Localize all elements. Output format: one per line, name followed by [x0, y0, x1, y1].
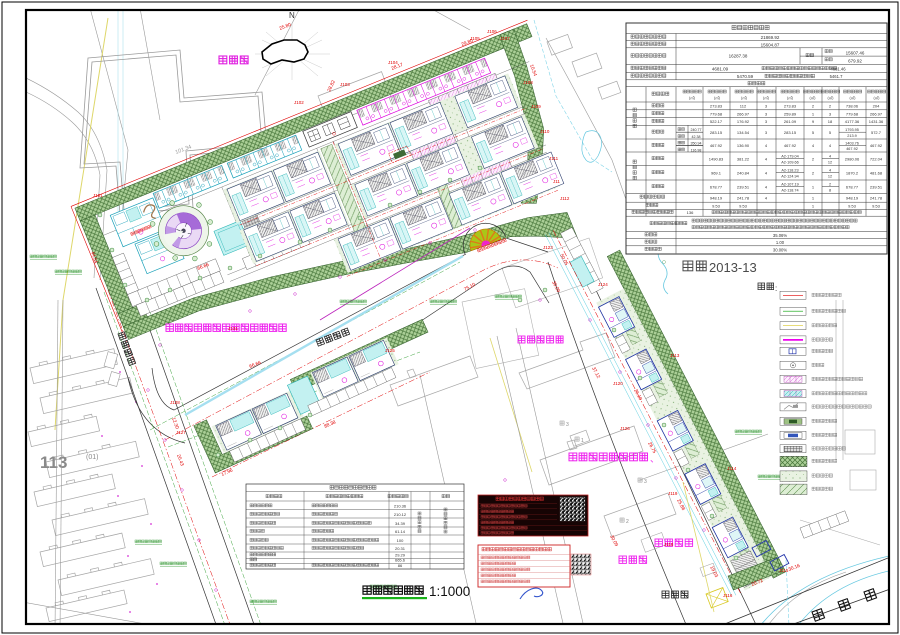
- svg-text:J119: J119: [668, 491, 678, 496]
- svg-text:241.78: 241.78: [870, 195, 883, 200]
- svg-text:12: 12: [828, 160, 832, 164]
- svg-text:J102: J102: [294, 100, 304, 105]
- svg-text:A2-107.19: A2-107.19: [781, 183, 799, 187]
- svg-text:665.6: 665.6: [395, 558, 406, 563]
- svg-text:113: 113: [40, 453, 67, 472]
- svg-text:61.14: 61.14: [395, 529, 406, 534]
- svg-text:241.78: 241.78: [737, 195, 750, 200]
- svg-text:481.68: 481.68: [870, 170, 883, 175]
- svg-text:A2-118.74: A2-118.74: [781, 188, 798, 192]
- svg-text:8: 8: [829, 188, 831, 192]
- svg-text:1403.76: 1403.76: [845, 142, 859, 146]
- svg-text:136.90: 136.90: [737, 143, 750, 148]
- svg-text:(㎡): (㎡): [689, 95, 695, 100]
- svg-text:210.12: 210.12: [394, 512, 407, 517]
- svg-text:9.53: 9.53: [712, 203, 721, 208]
- svg-text:240.77: 240.77: [691, 128, 702, 132]
- svg-text:467.92: 467.92: [710, 143, 723, 148]
- svg-text::: :: [775, 284, 777, 293]
- svg-text:15604.87: 15604.87: [761, 42, 780, 47]
- svg-text:100: 100: [397, 538, 404, 543]
- svg-text:J101: J101: [93, 193, 103, 198]
- svg-text:3: 3: [644, 479, 647, 485]
- svg-text:、: 、: [650, 454, 659, 464]
- svg-text:J116: J116: [723, 593, 733, 598]
- svg-text:(㎡): (㎡): [741, 95, 747, 100]
- svg-text:5461.7: 5461.7: [830, 74, 843, 79]
- svg-text:9.53: 9.53: [872, 203, 881, 208]
- svg-text:204: 204: [873, 104, 880, 109]
- svg-text:266.97: 266.97: [870, 111, 883, 116]
- svg-text:34.39: 34.39: [395, 521, 406, 526]
- svg-text:(㎡): (㎡): [850, 95, 856, 100]
- svg-text:4681.46: 4681.46: [830, 67, 846, 72]
- svg-text:J109: J109: [531, 104, 541, 109]
- svg-text:948.19: 948.19: [846, 195, 859, 200]
- svg-text:779.68: 779.68: [846, 111, 859, 116]
- svg-text:1:1000: 1:1000: [429, 584, 470, 599]
- svg-text:283.15: 283.15: [710, 130, 723, 135]
- svg-text:(㎡): (㎡): [874, 95, 880, 100]
- svg-text:20.31: 20.31: [395, 546, 406, 551]
- svg-text:A2-118.23: A2-118.23: [781, 169, 798, 173]
- svg-text:1490.83: 1490.83: [709, 156, 724, 161]
- svg-text:381.22: 381.22: [737, 156, 750, 161]
- svg-text:A2-124.94: A2-124.94: [781, 174, 799, 178]
- svg-text:5470.59: 5470.59: [737, 74, 754, 79]
- svg-text:239.51: 239.51: [870, 184, 883, 189]
- svg-text:467.92: 467.92: [846, 147, 858, 151]
- svg-text:679.92: 679.92: [848, 59, 862, 64]
- svg-text:4681.09: 4681.09: [712, 67, 729, 72]
- svg-text:9.53: 9.53: [739, 203, 748, 208]
- svg-text:779.68: 779.68: [710, 111, 723, 116]
- svg-text:(01): (01): [86, 454, 98, 461]
- svg-text:J11: J11: [553, 179, 560, 184]
- svg-text:572.7: 572.7: [871, 130, 882, 135]
- svg-text:(㎡): (㎡): [828, 95, 834, 100]
- svg-text:3: 3: [566, 422, 569, 428]
- svg-text:J107: J107: [500, 36, 510, 41]
- svg-text:4: 4: [829, 169, 831, 173]
- svg-text:1870.2: 1870.2: [846, 170, 859, 175]
- svg-text:J124: J124: [598, 282, 608, 287]
- svg-text:J120: J120: [613, 381, 623, 386]
- svg-text:18: 18: [828, 119, 833, 124]
- svg-text:(㎡): (㎡): [714, 95, 720, 100]
- svg-text:J108: J108: [523, 80, 533, 85]
- svg-text:738.06: 738.06: [846, 104, 859, 109]
- svg-text:(㎡): (㎡): [810, 95, 816, 100]
- svg-text:116.98: 116.98: [691, 148, 702, 152]
- svg-text:1431.36: 1431.36: [869, 119, 884, 124]
- svg-text:273.83: 273.83: [710, 104, 723, 109]
- svg-text:35.06%: 35.06%: [773, 233, 787, 238]
- svg-text:A2-109.66: A2-109.66: [781, 160, 799, 164]
- svg-text:259.89: 259.89: [784, 111, 797, 116]
- svg-text:1.00: 1.00: [776, 240, 785, 245]
- svg-text:J106: J106: [487, 29, 497, 34]
- svg-text:283.15: 283.15: [784, 130, 797, 135]
- svg-text:J110: J110: [540, 129, 550, 134]
- svg-text:2: 2: [626, 519, 629, 525]
- svg-text:21869.92: 21869.92: [761, 35, 780, 40]
- svg-text:J131: J131: [228, 326, 238, 331]
- svg-text:(㎡): (㎡): [763, 95, 769, 100]
- svg-text:240.84: 240.84: [737, 170, 750, 175]
- svg-text:2980.06: 2980.06: [845, 156, 860, 161]
- svg-text:136: 136: [687, 210, 694, 215]
- svg-text:J128: J128: [170, 400, 180, 405]
- svg-text:J127: J127: [176, 430, 186, 435]
- svg-text:42.38: 42.38: [692, 135, 701, 139]
- svg-text:350.94: 350.94: [691, 142, 702, 146]
- svg-text:J123: J123: [543, 245, 553, 250]
- svg-text:213.9: 213.9: [847, 134, 857, 138]
- svg-text:J114: J114: [727, 466, 737, 471]
- svg-text:176.92: 176.92: [737, 119, 750, 124]
- svg-text:1793.95: 1793.95: [845, 128, 859, 132]
- svg-text:J111: J111: [549, 156, 559, 161]
- svg-text:12: 12: [828, 174, 832, 178]
- svg-text:273.83: 273.83: [784, 104, 797, 109]
- svg-text:969.1: 969.1: [711, 170, 722, 175]
- svg-text:15607.46: 15607.46: [846, 50, 865, 55]
- svg-text:210.36: 210.36: [394, 504, 407, 509]
- svg-text:467.92: 467.92: [784, 143, 797, 148]
- svg-text:722.04: 722.04: [870, 156, 883, 161]
- svg-text:J113: J113: [670, 353, 680, 358]
- svg-text:261.09: 261.09: [784, 119, 797, 124]
- svg-text:112: 112: [740, 104, 747, 109]
- svg-text:(㎡): (㎡): [787, 95, 793, 100]
- svg-text:9.53: 9.53: [848, 203, 857, 208]
- svg-text:J103: J103: [340, 82, 350, 87]
- svg-text:J126: J126: [620, 426, 630, 431]
- svg-text:266.97: 266.97: [737, 111, 750, 116]
- svg-text:4: 4: [829, 155, 831, 159]
- svg-text:30.00%: 30.00%: [773, 247, 787, 252]
- svg-text:N: N: [289, 11, 295, 20]
- svg-text:A2-179.04: A2-179.04: [781, 155, 799, 159]
- svg-text:16287.38: 16287.38: [729, 54, 748, 59]
- svg-text:86: 86: [398, 563, 403, 568]
- svg-text:J112: J112: [560, 196, 570, 201]
- svg-text:134.54: 134.54: [737, 130, 750, 135]
- svg-text:678.77: 678.77: [846, 184, 859, 189]
- svg-text:2013-13: 2013-13: [709, 260, 757, 275]
- svg-text:J118: J118: [664, 542, 674, 547]
- svg-text:678.77: 678.77: [710, 184, 723, 189]
- svg-text:J125: J125: [385, 348, 395, 353]
- svg-text:1: 1: [581, 438, 584, 444]
- svg-text:2: 2: [829, 183, 831, 187]
- svg-text:522.17: 522.17: [710, 119, 723, 124]
- svg-text:467.92: 467.92: [870, 143, 883, 148]
- svg-text:948.19: 948.19: [710, 195, 723, 200]
- svg-text:4177.36: 4177.36: [845, 119, 860, 124]
- svg-text:239.51: 239.51: [737, 184, 750, 189]
